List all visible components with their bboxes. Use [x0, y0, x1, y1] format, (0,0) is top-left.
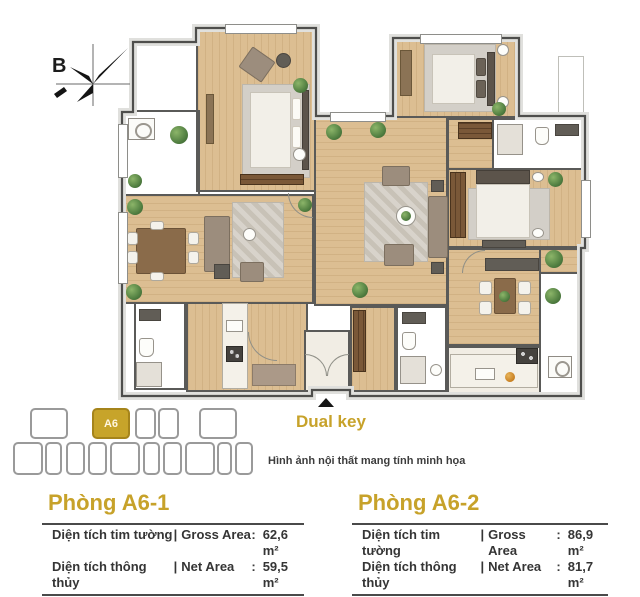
keyplan: A6: [0, 405, 275, 483]
area-value: 62,6 m²: [263, 527, 304, 559]
shower: [136, 362, 162, 387]
washing-machine: [548, 356, 572, 378]
area-label-en: Gross Area: [488, 527, 556, 559]
area-label-en: Net Area: [181, 559, 251, 575]
compass-arrow-icon: [44, 42, 140, 116]
divider: [352, 594, 608, 596]
compass-north-label: B: [52, 55, 66, 78]
window: [420, 34, 502, 44]
separator: :: [251, 527, 255, 543]
keyplan-unit[interactable]: [217, 442, 232, 475]
area-row-gross: Diện tích tim tường | Gross Area : 62,6 …: [52, 527, 304, 559]
disclaimer-text: Hình ảnh nội thất mang tính minh họa: [268, 455, 465, 467]
washing-machine: [128, 118, 155, 140]
plant: [128, 174, 142, 188]
divider: [42, 594, 304, 596]
stove: [226, 346, 243, 362]
fruit-bowl: [505, 372, 515, 382]
dining-chair: [479, 301, 492, 315]
area-row-net: Diện tích thông thủy | Net Area : 59,5 m…: [52, 559, 304, 591]
plant: [548, 172, 563, 187]
separator: :: [556, 559, 560, 575]
floorplan-page: B A6 Dual key Hình ảnh nội thất mang tín…: [0, 0, 640, 597]
dining-chair: [518, 281, 531, 295]
plant: [492, 102, 506, 116]
bathroom-vanity: [555, 124, 579, 136]
window: [118, 212, 128, 284]
ac-ledge: [558, 56, 584, 116]
area-label-vi: Diện tích thông thủy: [362, 559, 481, 591]
pouf: [293, 148, 306, 161]
kitchen-sink: [226, 320, 243, 332]
kitchen-sink: [475, 368, 495, 380]
stove: [516, 348, 538, 364]
armchair: [382, 166, 410, 186]
wardrobe: [353, 310, 366, 372]
keyplan-unit[interactable]: [163, 442, 182, 475]
keyplan-unit[interactable]: [66, 442, 85, 475]
bed: [250, 92, 291, 168]
compass: B: [44, 42, 140, 116]
keyplan-unit[interactable]: [45, 442, 62, 475]
separator: :: [556, 527, 560, 543]
nightstand: [532, 172, 544, 182]
sofa: [428, 196, 448, 258]
keyplan-unit[interactable]: [158, 408, 179, 439]
keyplan-unit[interactable]: [135, 408, 156, 439]
area-label-vi: Diện tích tim tường: [362, 527, 481, 559]
toilet: [535, 127, 549, 145]
window: [118, 124, 128, 178]
window: [225, 24, 297, 34]
dining-chair: [150, 272, 164, 281]
keyplan-unit[interactable]: [13, 442, 43, 475]
area-label-vi: Diện tích thông thủy: [52, 559, 174, 591]
console-cabinet: [240, 174, 304, 185]
keyplan-unit[interactable]: [88, 442, 107, 475]
plant: [499, 291, 510, 302]
toilet: [139, 338, 154, 357]
window: [330, 112, 386, 122]
plant: [401, 211, 411, 221]
armchair: [384, 244, 414, 266]
dining-chair: [188, 232, 199, 245]
window: [581, 180, 591, 238]
pillow: [476, 58, 486, 76]
unit-title: Phòng A6-2: [358, 490, 608, 516]
bed: [432, 54, 475, 104]
keyplan-unit[interactable]: [110, 442, 140, 475]
headboard: [487, 52, 495, 106]
plant: [127, 199, 143, 215]
plant: [545, 288, 561, 304]
dresser: [206, 94, 214, 144]
separator: |: [174, 559, 178, 575]
stool: [430, 364, 442, 376]
plant: [370, 122, 386, 138]
keyplan-unit[interactable]: [143, 442, 160, 475]
area-label-vi: Diện tích tim tường: [52, 527, 174, 543]
area-value: 86,9 m²: [568, 527, 608, 559]
pillow: [292, 98, 301, 120]
dining-chair: [518, 301, 531, 315]
pillow: [292, 126, 301, 148]
entrance-marker-icon: [318, 398, 334, 407]
shower: [497, 124, 523, 155]
separator: :: [251, 559, 255, 575]
bathroom-vanity: [402, 312, 426, 324]
area-row-net: Diện tích thông thủy | Net Area : 81,7 m…: [362, 559, 608, 591]
bed: [476, 184, 530, 238]
area-label-en: Net Area: [488, 559, 556, 575]
side-table: [431, 180, 444, 192]
area-row-gross: Diện tích tim tường | Gross Area : 86,9 …: [362, 527, 608, 559]
area-value: 81,7 m²: [568, 559, 608, 591]
nightstand: [532, 228, 544, 238]
dining-chair: [479, 281, 492, 295]
unit-info-a61: Phòng A6-1 Diện tích tim tường | Gross A…: [42, 490, 304, 596]
bed-bench: [482, 240, 526, 248]
plant: [293, 78, 308, 93]
round-table: [243, 228, 256, 241]
coffee-table: [214, 264, 230, 279]
separator: |: [481, 527, 485, 543]
plant: [545, 250, 563, 268]
keyplan-unit-a6[interactable]: A6: [92, 408, 130, 439]
dining-chair: [150, 221, 164, 230]
plant: [352, 282, 368, 298]
keyplan-unit[interactable]: [185, 442, 215, 475]
wardrobe: [450, 172, 466, 238]
separator: |: [174, 527, 178, 543]
unit-info-a62: Phòng A6-2 Diện tích tim tường | Gross A…: [352, 490, 608, 596]
side-table: [276, 53, 291, 68]
headboard: [476, 170, 530, 184]
keyplan-unit[interactable]: [30, 408, 68, 439]
dining-table: [136, 228, 186, 274]
entry-cabinet: [252, 364, 296, 386]
toilet: [402, 332, 416, 350]
plant: [326, 124, 342, 140]
kitchen-island: [485, 258, 539, 271]
keyplan-unit[interactable]: [199, 408, 237, 439]
dining-chair: [127, 251, 138, 264]
dresser: [400, 50, 412, 96]
nightstand: [497, 44, 509, 56]
pillow: [476, 80, 486, 98]
side-table: [431, 262, 444, 274]
plant: [126, 284, 142, 300]
dual-key-label: Dual key: [296, 412, 366, 432]
dining-chair: [127, 232, 138, 245]
dining-chair: [188, 251, 199, 264]
area-label-en: Gross Area: [181, 527, 251, 543]
bathroom-vanity: [139, 309, 161, 321]
unit-title: Phòng A6-1: [48, 490, 304, 516]
bathtub: [400, 356, 426, 384]
armchair: [240, 262, 264, 282]
separator: |: [481, 559, 485, 575]
area-value: 59,5 m²: [263, 559, 304, 591]
wardrobe: [458, 122, 492, 139]
keyplan-unit[interactable]: [235, 442, 253, 475]
plant: [170, 126, 188, 144]
